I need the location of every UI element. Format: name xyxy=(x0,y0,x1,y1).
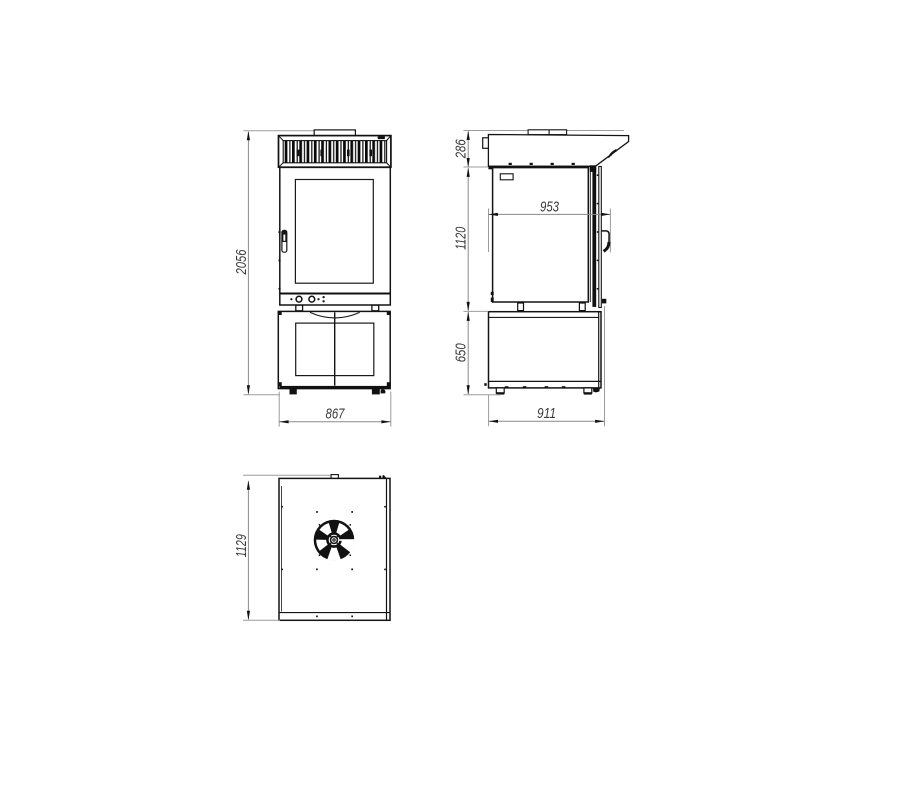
svg-text:2056: 2056 xyxy=(233,249,250,275)
svg-text:953: 953 xyxy=(540,198,559,215)
svg-text:1129: 1129 xyxy=(233,534,250,557)
svg-text:650: 650 xyxy=(453,343,470,362)
svg-text:1120: 1120 xyxy=(453,226,470,249)
svg-text:867: 867 xyxy=(326,405,345,422)
svg-text:911: 911 xyxy=(537,405,556,422)
svg-text:286: 286 xyxy=(453,139,470,159)
